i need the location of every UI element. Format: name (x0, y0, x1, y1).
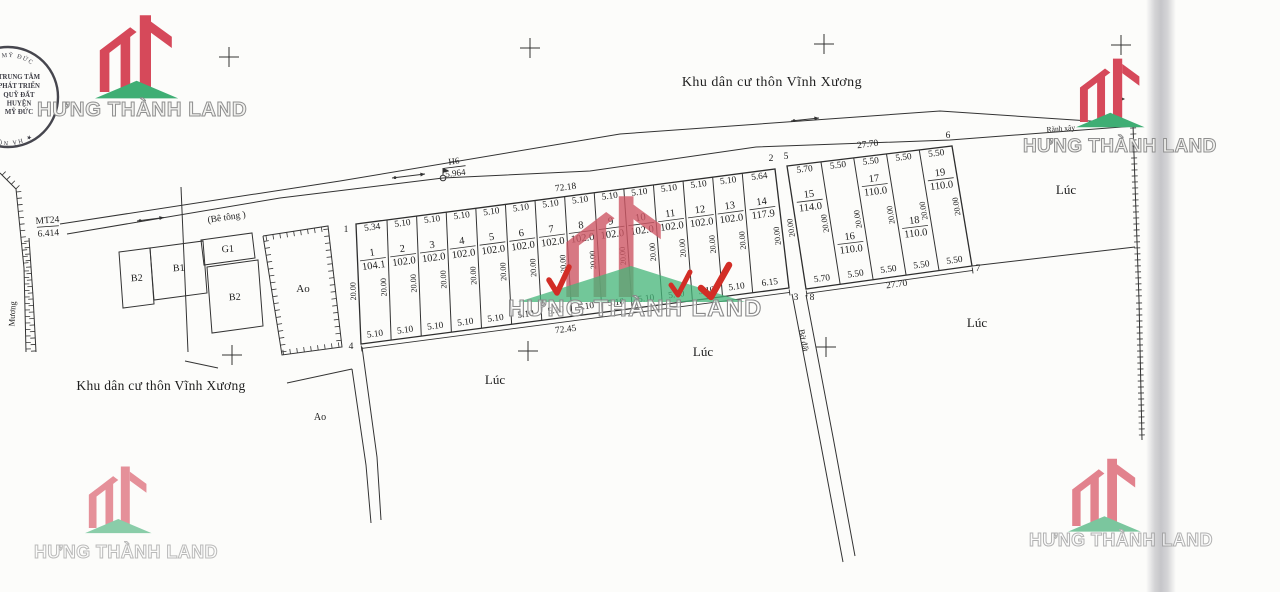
building-label: B1 (173, 263, 185, 275)
depth-label: 20.00 (348, 282, 358, 301)
canal-hatch (20, 230, 25, 231)
canal-hatch (22, 250, 27, 251)
canal-hatch (18, 211, 23, 212)
plot-width-top: 5.50 (829, 160, 847, 172)
residential-area-label-top: Khu dân cư thôn Vĩnh Xương (682, 75, 862, 90)
depth-label: 20.00 (528, 258, 538, 277)
canal-hatch (24, 263, 29, 264)
depth-label: 20.00 (737, 231, 748, 250)
stamp-line: TRUNG TÂM (0, 73, 41, 81)
pond-hatch (326, 250, 331, 251)
survey-drawing: AoAoB2B1G1B2LúcLúcLúcLúc20.0020.0020.002… (0, 0, 1280, 592)
scan-fold-band (1146, 0, 1176, 592)
pond-hatch (327, 264, 332, 265)
field-label: Lúc (967, 315, 987, 330)
mt24-name: MT24 (35, 215, 60, 227)
canal-hatch (18, 204, 23, 205)
canal-hatch (19, 217, 24, 218)
brand-wordmark: HƯNG THÀNH LAND (1029, 529, 1213, 550)
depth-label: 20.00 (409, 274, 419, 293)
brand-wordmark: HƯNG THÀNH LAND (34, 541, 218, 562)
corner-point-3: 3 (794, 293, 799, 303)
arrow-dot (394, 176, 397, 179)
pond-hatch (325, 243, 330, 244)
canal-hatch (17, 198, 22, 199)
pond-hatch (331, 292, 336, 293)
depth-label: 20.00 (379, 278, 389, 297)
canal-hatch (16, 191, 21, 192)
canal-hatch (21, 237, 26, 238)
plot-width-top: 5.50 (862, 156, 880, 168)
building-label: G1 (221, 244, 234, 256)
pond-hatch (336, 340, 341, 341)
pond-hatch (323, 229, 328, 230)
pond-hatch (330, 285, 335, 286)
depth-label: 20.00 (707, 235, 717, 254)
plot-number: 18 (908, 215, 920, 227)
corner-point-5: 5 (784, 152, 789, 162)
depth-label: 20.00 (678, 239, 688, 258)
plot-number: 11 (665, 208, 676, 220)
plot-number: 12 (694, 204, 706, 216)
corner-point-8: 8 (810, 293, 815, 303)
pond-hatch (332, 305, 337, 306)
field-label: Lúc (693, 344, 713, 359)
brand-wordmark: HƯNG THÀNH LAND (1023, 135, 1217, 157)
pond-hatch (327, 257, 332, 258)
canal-label: Mương (6, 300, 17, 326)
depth-label: 20.00 (469, 266, 479, 285)
pond-hatch (331, 299, 336, 300)
arrow-dot (139, 219, 142, 222)
mt24-value: 6.414 (37, 228, 59, 239)
pond-hatch (328, 271, 333, 272)
field-label: Lúc (485, 372, 505, 387)
pond-label: Ao (314, 412, 326, 423)
plot-number: 15 (803, 189, 815, 201)
arrow-dot (793, 119, 796, 122)
plot-width-top: 5.70 (796, 164, 814, 176)
field-label: Lúc (1056, 182, 1076, 197)
plot-number: 17 (868, 173, 880, 185)
depth-label: 20.00 (648, 243, 658, 262)
pond-hatch (333, 312, 338, 313)
pond-hatch (324, 236, 329, 237)
brand-wordmark-watermark: HƯNG THÀNH LAND (508, 294, 763, 321)
corner-point-4: 4 (349, 342, 354, 352)
stamp-line: MỸ ĐỨC (5, 108, 33, 116)
building-label: B2 (131, 273, 143, 285)
pond-label: Ao (296, 283, 310, 295)
depth-label: 20.00 (498, 262, 508, 281)
canal-hatch (22, 243, 27, 244)
cadastral-map-page: AoAoB2B1G1B2LúcLúcLúcLúc20.0020.0020.002… (0, 0, 1280, 592)
brand-wordmark: HƯNG THÀNH LAND (37, 98, 247, 121)
residential-area-label-bottom: Khu dân cư thôn Vĩnh Xương (76, 378, 245, 393)
pond-hatch (334, 319, 339, 320)
stamp-line: PHÁT TRIỂN (0, 82, 40, 90)
canal-hatch (23, 256, 28, 257)
pond-hatch (329, 278, 334, 279)
pond-hatch (335, 326, 340, 327)
plot-number: 16 (844, 231, 856, 243)
pond-hatch (335, 333, 340, 334)
corner-point-7: 7 (976, 264, 981, 274)
stamp-line: HUYỆN (7, 100, 32, 108)
plot-width-top: 5.50 (895, 152, 913, 164)
stamp-line: QUỸ ĐẤT (3, 91, 35, 99)
plot-width-top: 5.50 (928, 148, 946, 160)
plot-number: 13 (724, 200, 736, 212)
building-label: B2 (229, 292, 241, 304)
h6-name: H6 (448, 155, 461, 166)
depth-label: 20.00 (439, 270, 449, 289)
plot-number: 19 (934, 167, 946, 179)
corner-point-6: 6 (946, 131, 951, 141)
corner-point-1: 1 (344, 225, 349, 235)
canal-hatch (20, 224, 25, 225)
corner-point-2: 2 (769, 154, 774, 164)
